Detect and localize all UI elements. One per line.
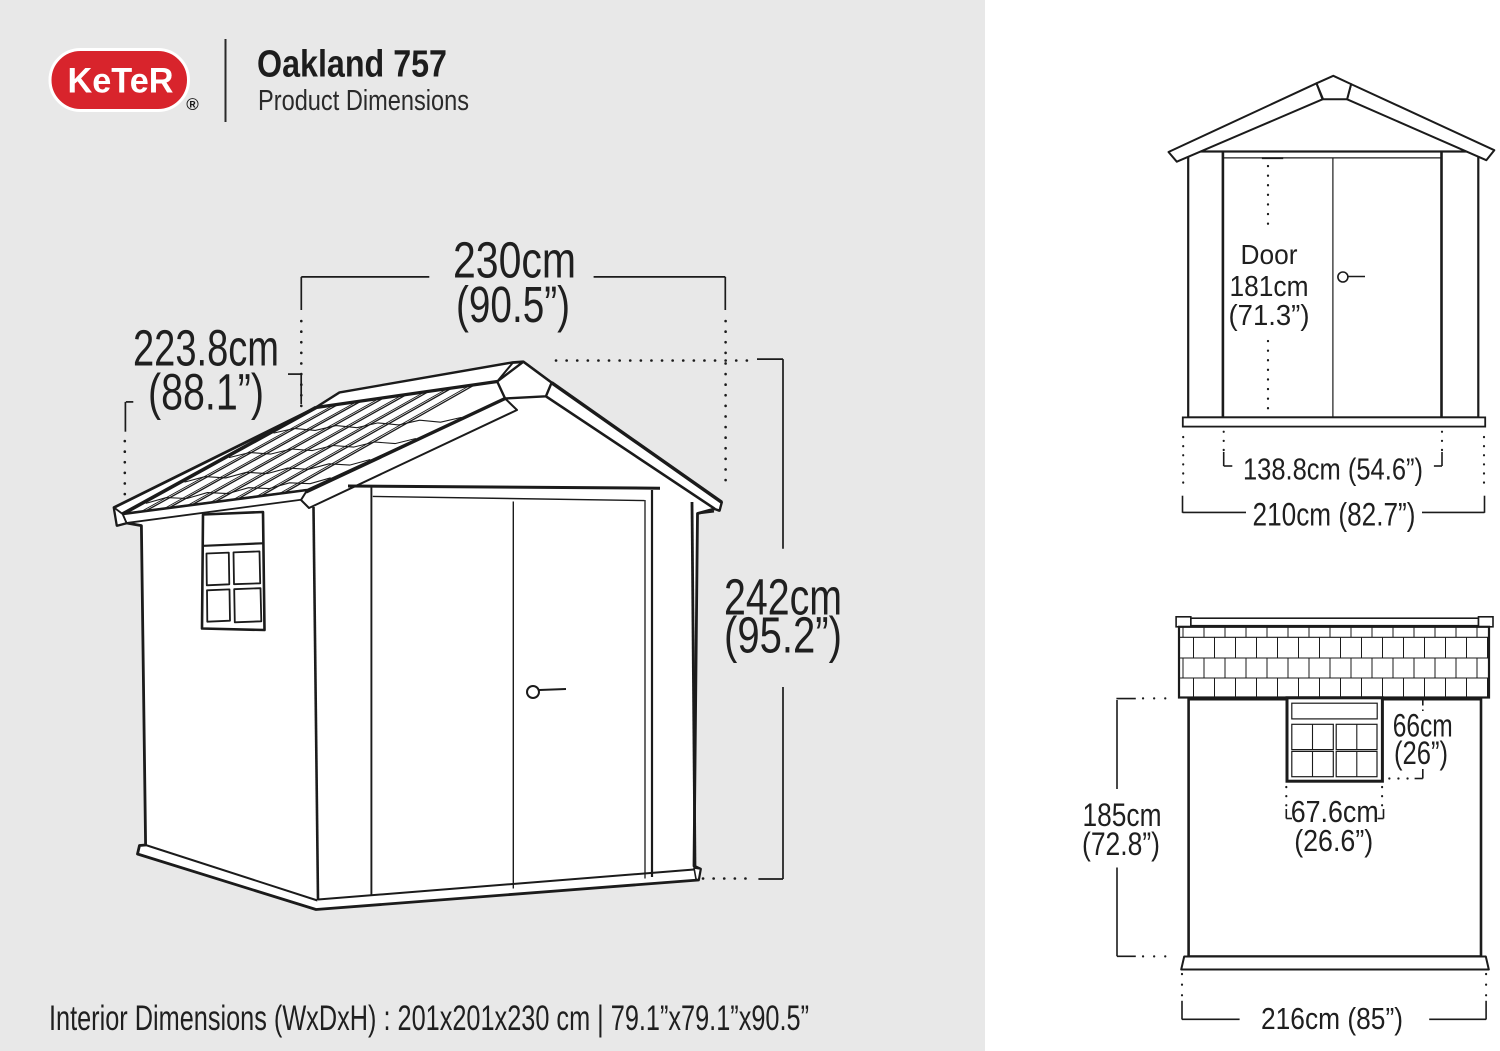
svg-text:®: ® [186, 95, 199, 114]
svg-text:Door: Door [1241, 239, 1298, 270]
svg-text:(26.6”): (26.6”) [1294, 823, 1373, 858]
svg-text:(26”): (26”) [1394, 735, 1448, 771]
svg-text:Interior Dimensions (WxDxH) :: Interior Dimensions (WxDxH) : 201x201x23… [49, 998, 809, 1038]
svg-text:(90.5”): (90.5”) [456, 276, 570, 333]
svg-text:216cm (85”): 216cm (85”) [1261, 1001, 1403, 1036]
svg-text:138.8cm (54.6”): 138.8cm (54.6”) [1243, 452, 1423, 487]
svg-text:(71.3”): (71.3”) [1229, 300, 1310, 332]
svg-text:Oakland 757: Oakland 757 [257, 44, 447, 86]
svg-text:KeTeR: KeTeR [68, 62, 174, 101]
svg-text:(95.2”): (95.2”) [724, 607, 842, 664]
svg-text:181cm: 181cm [1230, 271, 1309, 303]
svg-text:(88.1”): (88.1”) [148, 364, 264, 421]
svg-text:210cm (82.7”): 210cm (82.7”) [1253, 497, 1416, 533]
svg-text:Product Dimensions: Product Dimensions [258, 85, 469, 117]
svg-text:(72.8”): (72.8”) [1082, 826, 1160, 862]
